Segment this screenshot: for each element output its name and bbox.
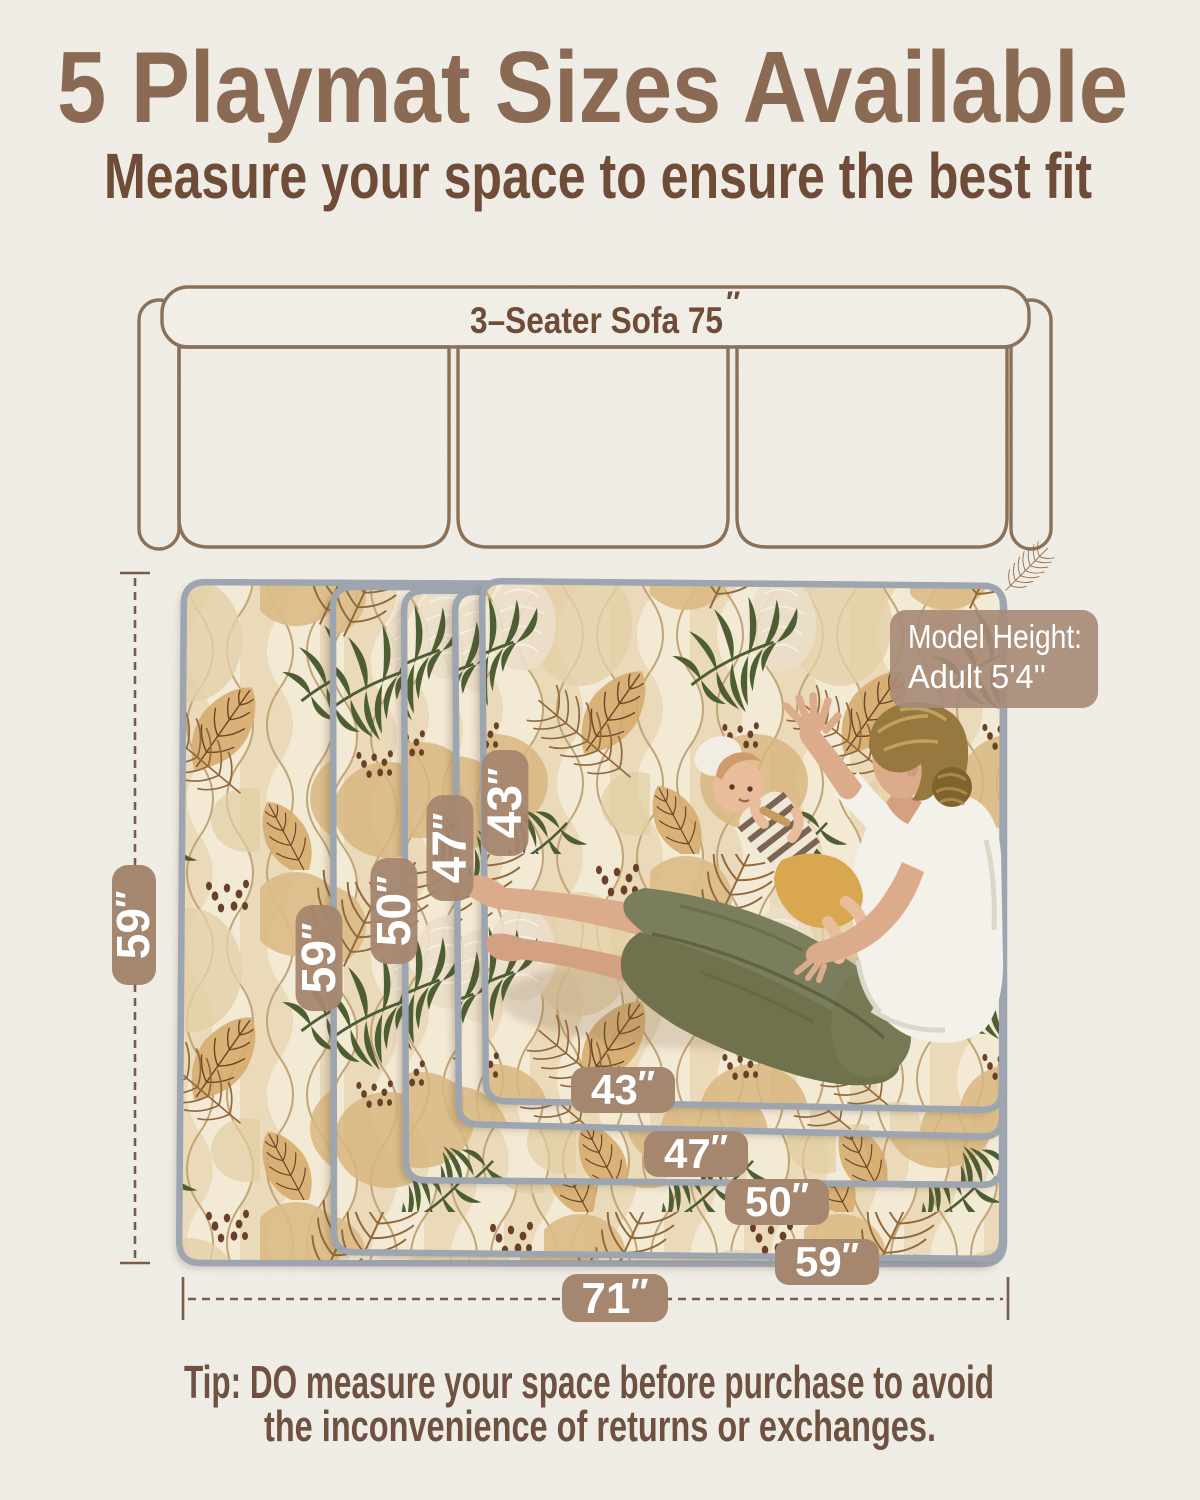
svg-text:Model Height:: Model Height:: [908, 618, 1082, 655]
svg-text:3–Seater Sofa 75: 3–Seater Sofa 75: [470, 300, 723, 341]
svg-text:Adult 5'4'': Adult 5'4'': [908, 658, 1046, 695]
svg-text:″: ″: [726, 286, 740, 319]
svg-text:Tip: DO measure your space bef: Tip: DO measure your space before purcha…: [184, 1356, 994, 1408]
svg-text:the inconvenience of returns o: the inconvenience of returns or exchange…: [264, 1402, 936, 1451]
